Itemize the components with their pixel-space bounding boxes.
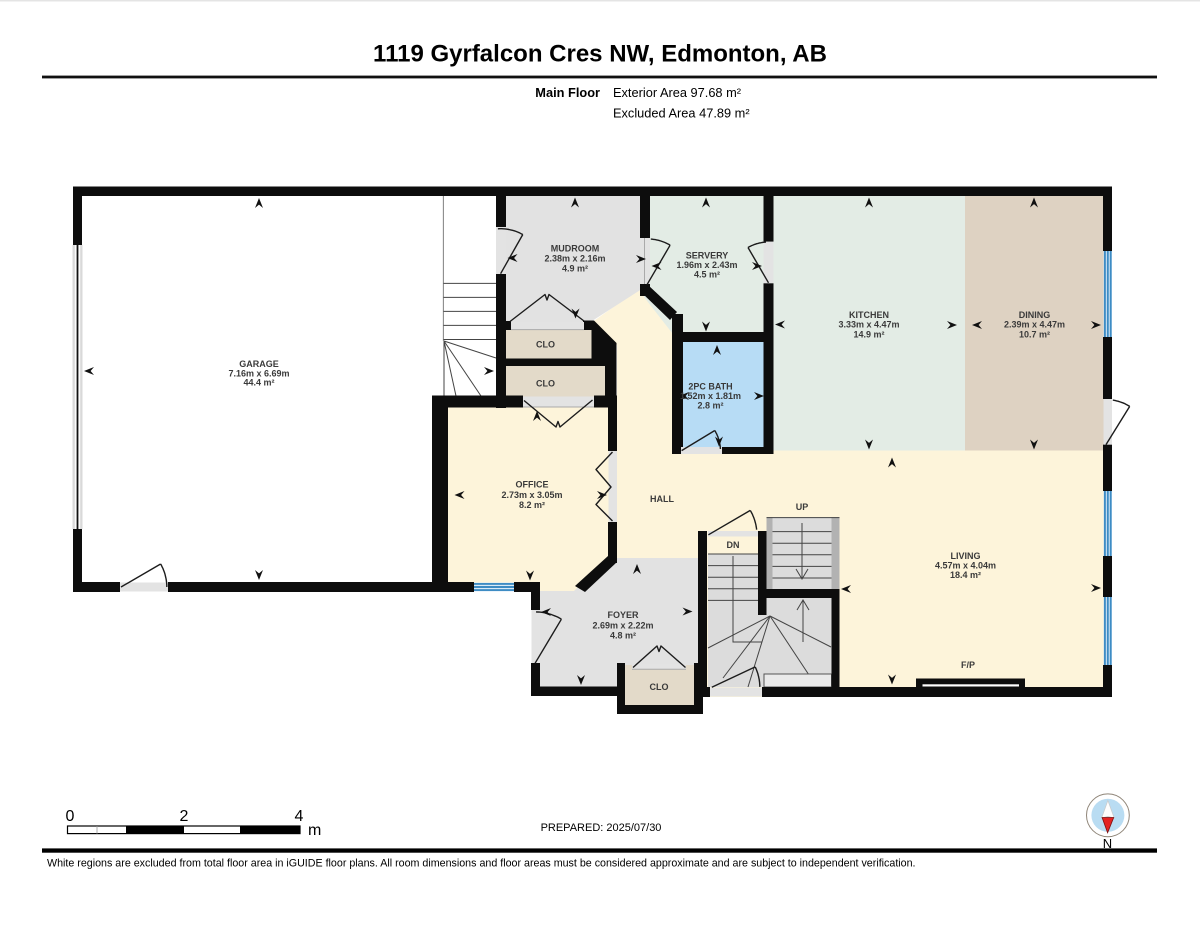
svg-text:2.69m x 2.22m: 2.69m x 2.22m	[592, 620, 653, 630]
svg-text:Main Floor: Main Floor	[535, 85, 600, 100]
svg-text:44.4 m²: 44.4 m²	[243, 378, 274, 388]
svg-text:18.4 m²: 18.4 m²	[950, 570, 981, 580]
svg-text:1.96m x 2.43m: 1.96m x 2.43m	[676, 260, 737, 270]
svg-text:1119 Gyrfalcon Cres NW, Edmont: 1119 Gyrfalcon Cres NW, Edmonton, AB	[373, 41, 827, 68]
svg-text:2: 2	[180, 808, 189, 825]
svg-text:2.39m x 4.47m: 2.39m x 4.47m	[1004, 320, 1065, 330]
svg-text:CLO: CLO	[536, 379, 555, 389]
svg-text:KITCHEN: KITCHEN	[849, 310, 889, 320]
svg-text:MUDROOM: MUDROOM	[551, 243, 600, 253]
svg-text:2.73m x 3.05m: 2.73m x 3.05m	[501, 490, 562, 500]
svg-text:GARAGE: GARAGE	[239, 359, 279, 369]
svg-text:1.52m x 1.81m: 1.52m x 1.81m	[680, 391, 741, 401]
svg-text:10.7 m²: 10.7 m²	[1019, 329, 1050, 339]
svg-text:F/P: F/P	[961, 660, 975, 670]
svg-text:PREPARED: 2025/07/30: PREPARED: 2025/07/30	[541, 822, 662, 834]
svg-text:White regions are excluded fro: White regions are excluded from total fl…	[47, 858, 916, 870]
svg-text:4.9 m²: 4.9 m²	[562, 263, 588, 273]
svg-text:SERVERY: SERVERY	[686, 251, 729, 261]
svg-text:4.57m x 4.04m: 4.57m x 4.04m	[935, 561, 996, 571]
svg-text:Excluded Area 47.89 m²: Excluded Area 47.89 m²	[613, 106, 750, 121]
svg-text:3.33m x 4.47m: 3.33m x 4.47m	[838, 320, 899, 330]
svg-text:4.8 m²: 4.8 m²	[610, 630, 636, 640]
svg-text:Exterior Area 97.68 m²: Exterior Area 97.68 m²	[613, 85, 742, 100]
svg-text:m: m	[308, 822, 321, 839]
svg-text:DINING: DINING	[1019, 310, 1051, 320]
svg-text:CLO: CLO	[536, 340, 555, 350]
svg-text:2PC BATH: 2PC BATH	[688, 382, 732, 392]
svg-text:LIVING: LIVING	[950, 551, 980, 561]
svg-text:14.9 m²: 14.9 m²	[853, 329, 884, 339]
svg-text:2.38m x 2.16m: 2.38m x 2.16m	[544, 254, 605, 264]
svg-text:0: 0	[66, 808, 75, 825]
svg-text:FOYER: FOYER	[607, 610, 639, 620]
svg-text:4: 4	[295, 808, 304, 825]
svg-text:HALL: HALL	[650, 494, 674, 504]
svg-text:CLO: CLO	[650, 682, 669, 692]
svg-text:2.8 m²: 2.8 m²	[697, 401, 723, 411]
svg-text:8.2 m²: 8.2 m²	[519, 500, 545, 510]
svg-text:OFFICE: OFFICE	[516, 480, 549, 490]
svg-text:DN: DN	[727, 540, 740, 550]
svg-text:UP: UP	[796, 502, 809, 512]
svg-text:4.5 m²: 4.5 m²	[694, 270, 720, 280]
